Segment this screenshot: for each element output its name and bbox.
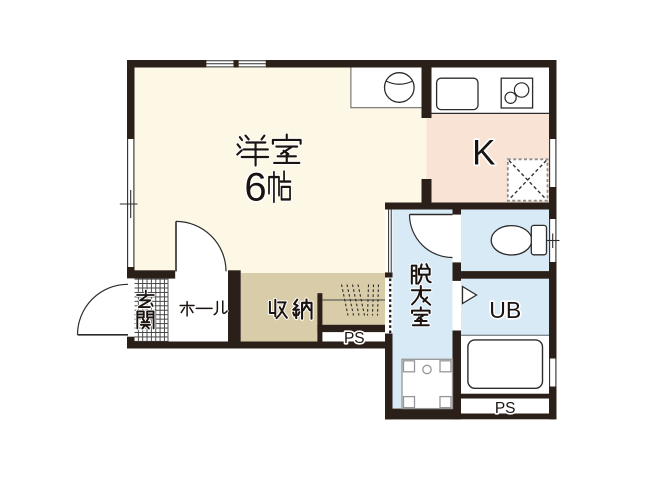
svg-text:6: 6: [244, 166, 266, 210]
svg-text:UB: UB: [489, 297, 521, 323]
svg-text:PS: PS: [344, 330, 365, 347]
svg-text:K: K: [472, 134, 495, 173]
svg-text:PS: PS: [495, 400, 516, 417]
